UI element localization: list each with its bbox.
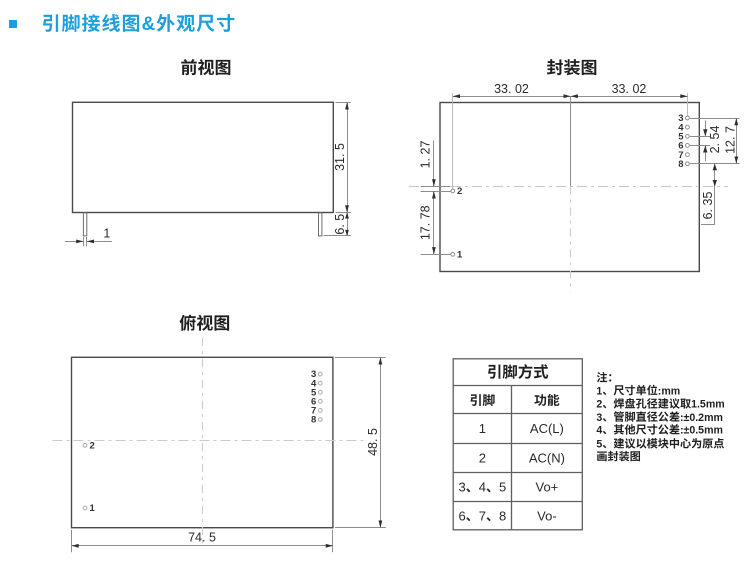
svg-text:1: 1: [90, 503, 96, 514]
svg-text:1: 1: [457, 249, 463, 260]
svg-text:1: 1: [103, 227, 110, 241]
svg-text:2: 2: [596, 399, 602, 411]
svg-text::±0.5mm: :±0.5mm: [680, 425, 723, 437]
svg-text:8: 8: [311, 415, 316, 426]
svg-text:17. 78: 17. 78: [418, 205, 432, 240]
svg-text:33. 02: 33. 02: [494, 82, 529, 96]
svg-text:6. 5: 6. 5: [333, 214, 347, 235]
svg-text:6. 35: 6. 35: [701, 192, 715, 220]
svg-text:12. 7: 12. 7: [724, 126, 738, 154]
svg-text:&: &: [142, 14, 157, 35]
svg-text:8: 8: [678, 159, 683, 170]
svg-text:7: 7: [479, 508, 486, 523]
svg-text:1. 27: 1. 27: [418, 141, 432, 169]
svg-text:2: 2: [479, 451, 486, 466]
svg-text:33. 02: 33. 02: [612, 82, 647, 96]
svg-text::mm: :mm: [658, 385, 680, 397]
svg-text:AC(N): AC(N): [529, 451, 565, 466]
svg-text:5: 5: [499, 480, 506, 495]
svg-text:1: 1: [596, 385, 602, 397]
svg-text:6: 6: [459, 508, 466, 523]
svg-text:48. 5: 48. 5: [366, 428, 380, 456]
svg-text:2: 2: [457, 186, 462, 197]
svg-text:1.5mm: 1.5mm: [691, 399, 725, 411]
svg-text:8: 8: [499, 508, 506, 523]
svg-text::±0.2mm: :±0.2mm: [680, 412, 723, 424]
svg-text:AC(L): AC(L): [530, 421, 564, 436]
svg-text:31. 5: 31. 5: [333, 143, 347, 171]
svg-text:Vo-: Vo-: [537, 508, 557, 523]
svg-text:2: 2: [90, 441, 95, 452]
svg-text:1: 1: [479, 421, 486, 436]
svg-text:5: 5: [596, 439, 602, 451]
svg-text:3: 3: [596, 412, 602, 424]
svg-text:4: 4: [596, 425, 602, 437]
svg-text:74. 5: 74. 5: [188, 530, 216, 544]
svg-text:4: 4: [479, 480, 486, 495]
svg-text:3: 3: [459, 480, 466, 495]
svg-text:Vo+: Vo+: [536, 480, 559, 495]
svg-text:2. 54: 2. 54: [708, 126, 722, 154]
